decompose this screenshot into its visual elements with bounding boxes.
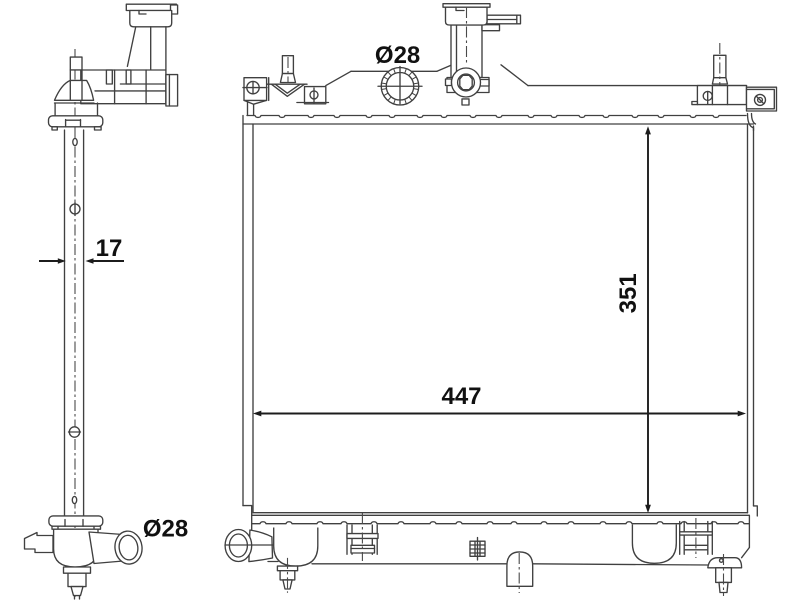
svg-text:Ø28: Ø28 <box>143 516 188 543</box>
svg-text:447: 447 <box>441 383 481 410</box>
svg-text:17: 17 <box>96 235 123 262</box>
svg-text:351: 351 <box>615 273 642 313</box>
svg-text:Ø28: Ø28 <box>375 42 420 69</box>
